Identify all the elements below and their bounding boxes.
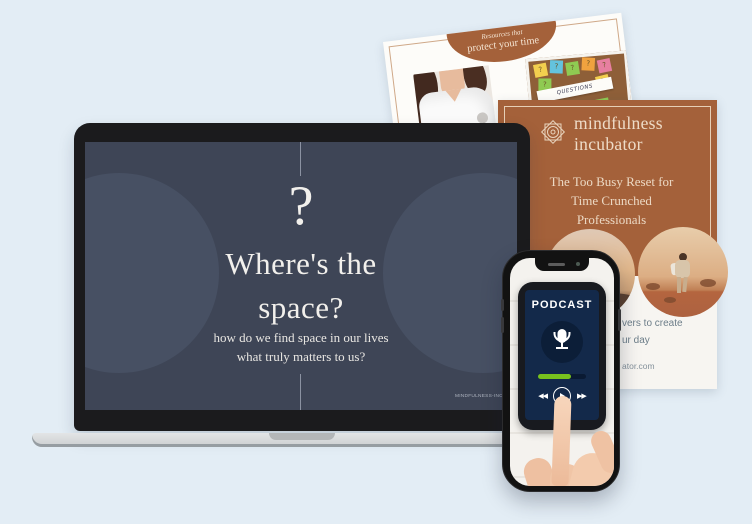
slide-title-line1: Where's the	[85, 246, 517, 282]
phone-volume-button	[501, 317, 504, 333]
slide-bottom-line	[300, 374, 301, 410]
laptop-screen-slide: ? Where's the space? how do we find spac…	[85, 142, 517, 410]
desert-bush	[646, 283, 660, 290]
phone-camera	[576, 262, 580, 266]
question-mark-glyph: ?	[85, 176, 517, 236]
laptop-base-notch	[269, 433, 335, 440]
walking-person-photo-circle	[638, 227, 728, 317]
woman-collar	[445, 89, 462, 103]
slide-title-line2: space?	[85, 290, 517, 326]
podcast-title: PODCAST	[525, 299, 599, 311]
workbook-title: The Too Busy Reset for Time Crunched Pro…	[508, 172, 715, 229]
phone-mockup: PODCAST ◀◀ ▶▶	[502, 250, 620, 492]
rewind-icon[interactable]: ◀◀	[538, 392, 547, 400]
brand-wordmark: mindfulness incubator	[574, 113, 663, 155]
footer-fragment-line1: vers to create	[622, 318, 683, 330]
phone-volume-button	[501, 299, 504, 311]
phone-speaker	[548, 263, 565, 266]
workbook-footer-text: vers to create ur day ator.com	[622, 318, 683, 371]
laptop-base	[32, 433, 572, 447]
promo-scene: Resources that protect your time ? ? ? ?…	[0, 0, 752, 524]
slide-footer-url: MINDFULNESS-INCU	[455, 394, 507, 399]
person-body	[675, 260, 690, 278]
workbook-title-line1: The Too Busy Reset for	[508, 172, 715, 191]
phone-screen-photo: PODCAST ◀◀ ▶▶	[510, 258, 614, 486]
sticky-note: ?	[533, 63, 548, 78]
mindfulness-incubator-logo-icon	[538, 117, 568, 147]
brand-line2: incubator	[574, 134, 663, 155]
desert-bush	[700, 279, 716, 287]
progress-fill	[538, 374, 571, 379]
slide-subtitle-line2: what truly matters to us?	[85, 349, 517, 365]
sticky-note: ?	[581, 57, 595, 71]
slide-subtitle-line1: how do we find space in our lives	[85, 330, 517, 346]
sticky-note: ?	[565, 61, 580, 76]
brand-line1: mindfulness	[574, 113, 663, 134]
phone-notch	[535, 258, 589, 271]
footer-fragment-url: ator.com	[622, 361, 683, 371]
sticky-note: ?	[597, 58, 612, 73]
microphone-icon	[541, 321, 583, 363]
desert-bush	[664, 297, 676, 303]
person-leg	[677, 277, 681, 293]
slide-top-line	[300, 142, 301, 176]
phone-power-button	[618, 309, 621, 331]
fast-forward-icon[interactable]: ▶▶	[577, 392, 586, 400]
pointing-finger	[551, 396, 571, 486]
sticky-note: ?	[550, 60, 563, 73]
workbook-title-line2: Time Crunched	[508, 191, 715, 210]
footer-fragment-line2: ur day	[622, 335, 683, 347]
progress-bar[interactable]	[538, 374, 586, 379]
